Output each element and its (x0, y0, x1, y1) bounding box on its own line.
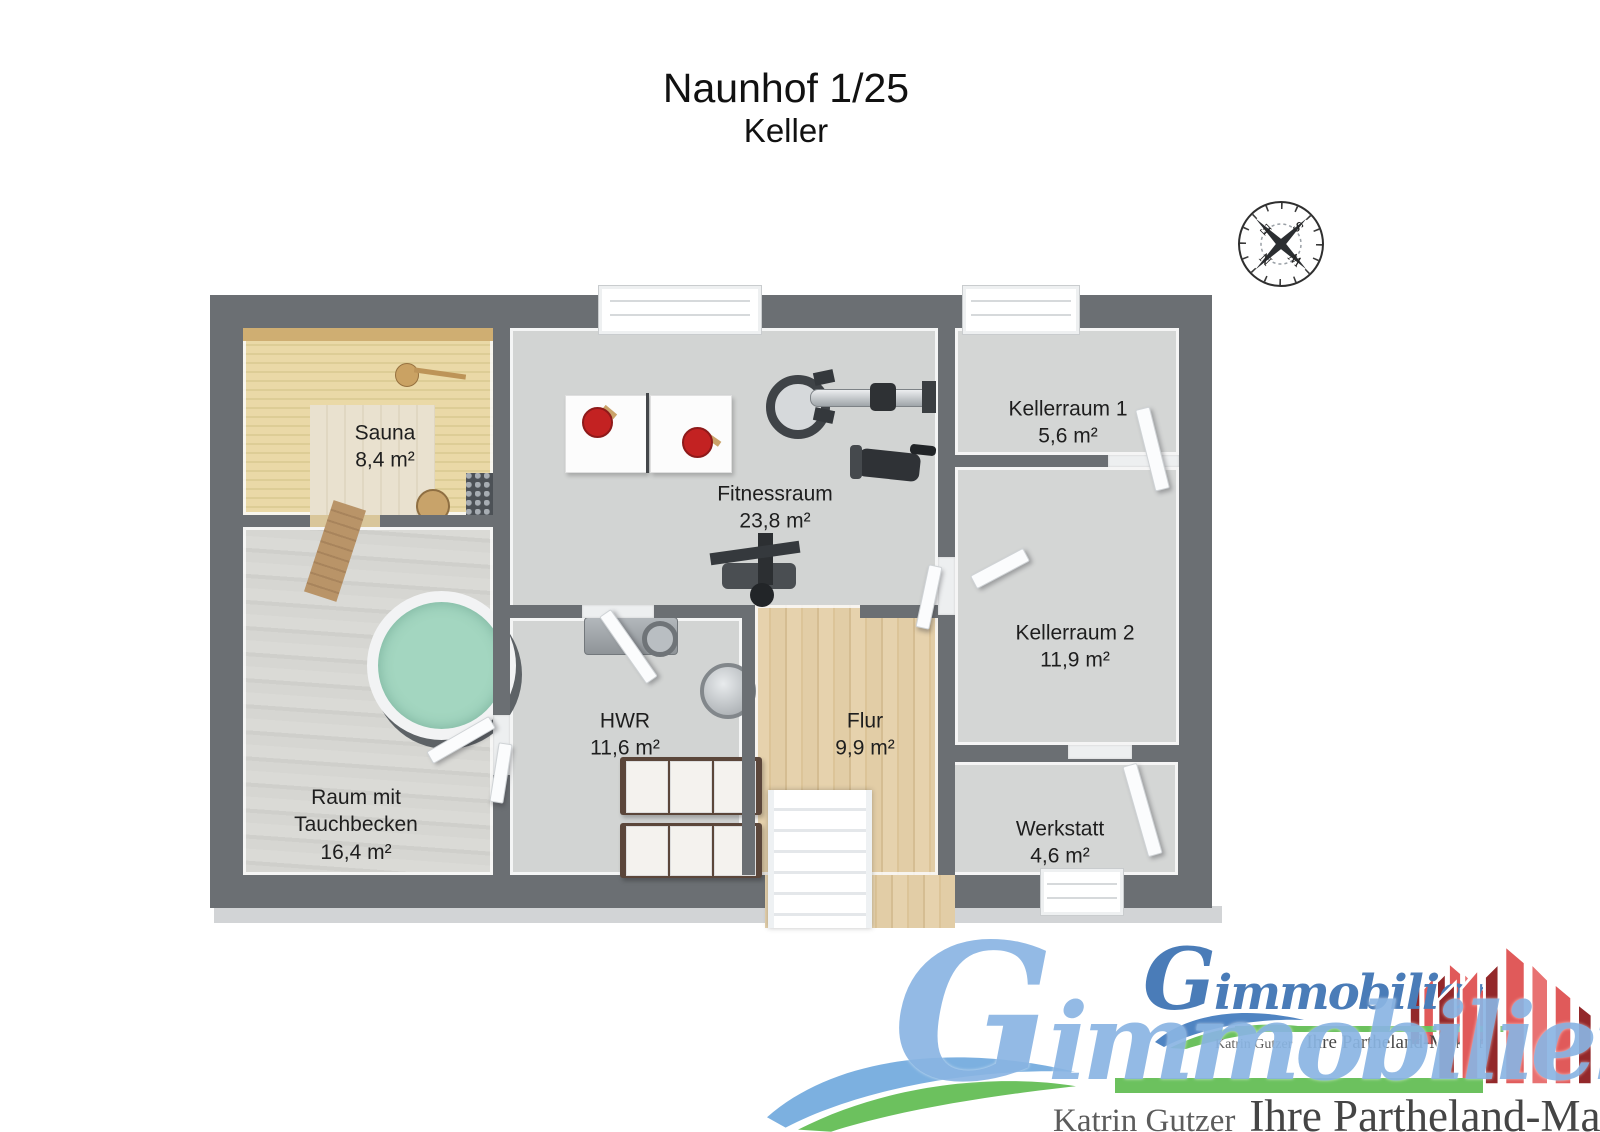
door-threshold (1108, 455, 1179, 467)
brand-rest: immobilien (1048, 979, 1600, 1104)
rowing-machine-end (922, 381, 936, 413)
wall-segment (493, 527, 510, 715)
room-label-hwr: HWR 11,6 m² (590, 708, 660, 763)
wall-segment (654, 605, 755, 618)
rowing-machine-seat (870, 383, 896, 411)
logo-owner: Katrin Gutzer (1053, 1103, 1235, 1132)
wall-segment (955, 455, 1108, 467)
wall-segment (493, 328, 510, 515)
room-label-kellerraum1: Kellerraum 1 5,6 m² (1008, 396, 1127, 451)
exercise-bike-rear (850, 445, 862, 479)
sauna-heater (466, 473, 493, 517)
title-line1: Naunhof 1/25 (663, 66, 909, 111)
brand-initial: G (893, 903, 1048, 1124)
lounger-2-cushion-b (670, 826, 712, 876)
door-threshold (1068, 745, 1132, 759)
paddle-2 (682, 427, 713, 458)
paddle-1 (582, 407, 613, 438)
staircase (768, 790, 872, 928)
title-line2: Keller (663, 111, 909, 151)
wall-segment (742, 605, 755, 875)
room-label-werkstatt: Werkstatt 4,6 m² (1016, 816, 1104, 871)
floor-plan: Sauna 8,4 m² Fitnessraum 23,8 m² Kellerr… (210, 295, 1212, 908)
lounger-2-cushion-a (626, 826, 668, 876)
door-threshold (582, 605, 654, 618)
wall-segment (243, 515, 310, 527)
wall-segment (380, 515, 493, 527)
room-label-tauchbecken: Raum mit Tauchbecken 16,4 m² (286, 784, 426, 866)
compass-rose-icon: N E S W (1233, 196, 1329, 292)
logo-large: Katrin GutzerIhre Partheland-Maklerin Gi… (765, 920, 1600, 1132)
lounger-1-cushion-b (670, 761, 712, 813)
wall-segment (938, 328, 955, 557)
floorplan-page: Naunhof 1/25 Keller N E S W (0, 0, 1600, 1132)
room-label-sauna: Sauna 8,4 m² (355, 420, 416, 475)
weight-machine-tower (758, 533, 773, 585)
lounger-1-cushion-a (626, 761, 668, 813)
window-kellerraum1 (962, 285, 1080, 335)
room-label-kellerraum2: Kellerraum 2 11,9 m² (1015, 620, 1134, 675)
weight-machine-seat (750, 583, 774, 607)
table-tennis-net (646, 393, 649, 473)
room-label-fitnessraum: Fitnessraum 23,8 m² (717, 481, 833, 536)
room-label-flur: Flur 9,9 m² (835, 708, 895, 763)
page-title: Naunhof 1/25 Keller (663, 66, 909, 151)
door-threshold (938, 557, 955, 615)
washing-machine-door (642, 621, 678, 657)
room-kellerraum2-floor (955, 467, 1179, 745)
wall-segment (945, 745, 1068, 759)
brand-logotype: Gimmobilien (893, 934, 1600, 1094)
window-werkstatt (1040, 868, 1124, 916)
sauna-backrest (243, 328, 493, 341)
wall-segment (1132, 745, 1179, 759)
wall-segment (510, 605, 582, 618)
window-fitnessraum (598, 285, 762, 335)
